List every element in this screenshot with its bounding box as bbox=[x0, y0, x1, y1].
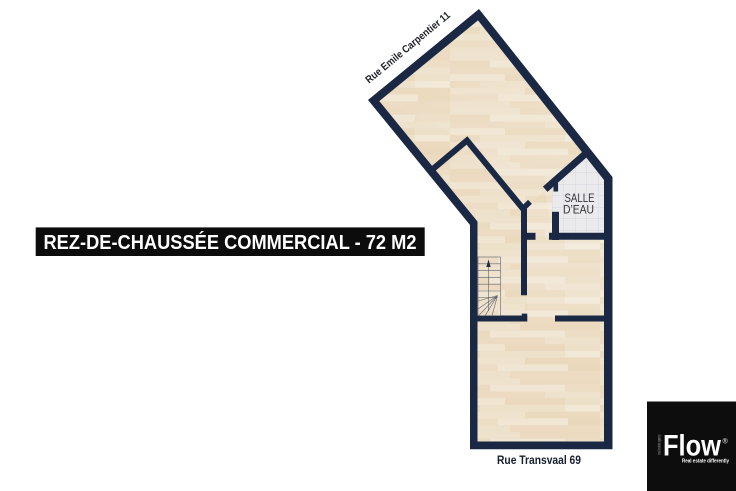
svg-text:REZ-DE-CHAUSSÉE COMMERCIAL - 7: REZ-DE-CHAUSSÉE COMMERCIAL - 72 M2 bbox=[44, 231, 417, 254]
svg-text:real estate agency: real estate agency bbox=[657, 434, 662, 455]
svg-text:Rue Transvaal 69: Rue Transvaal 69 bbox=[497, 455, 581, 467]
svg-text:Real estate differently: Real estate differently bbox=[682, 459, 730, 465]
svg-text:®: ® bbox=[723, 438, 729, 446]
svg-text:D’EAU: D’EAU bbox=[563, 203, 594, 217]
